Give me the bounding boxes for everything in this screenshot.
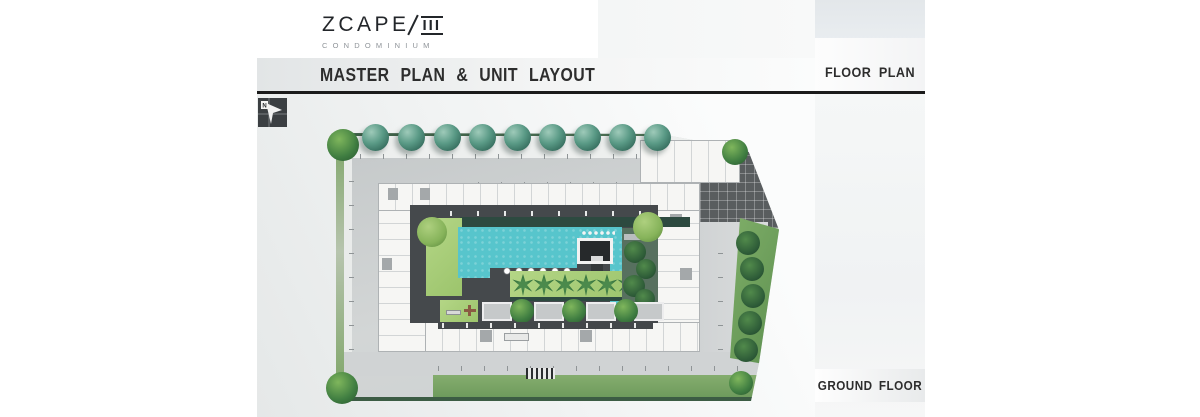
pavilion-seat — [591, 256, 603, 261]
master-plan-header-bar: MASTER PLAN & UNIT LAYOUT — [257, 58, 815, 91]
street-tree-icon — [434, 124, 461, 151]
spa-bench — [446, 310, 461, 315]
brand-subtitle: CONDOMINIUM — [322, 41, 502, 50]
compass-letter: N — [262, 104, 266, 110]
parking-ticks-right — [718, 230, 723, 350]
stair-core — [420, 188, 430, 200]
tree-icon — [417, 217, 447, 247]
tree-icon — [633, 212, 663, 242]
street-tree-icon — [398, 124, 425, 151]
top-middle-panel — [598, 0, 815, 58]
pool-pavilion — [577, 238, 613, 264]
spa-cross-icon — [468, 305, 471, 316]
street-tree-icon — [574, 124, 601, 151]
rear-lawn-strip — [433, 375, 765, 398]
page-title: MASTER PLAN & UNIT LAYOUT — [320, 65, 595, 86]
stair-core — [680, 268, 692, 280]
stair-core — [388, 188, 398, 200]
parking-ticks-top — [360, 154, 642, 159]
floor-plan-tab[interactable]: FLOOR PLAN — [815, 38, 925, 91]
tree-icon — [326, 372, 358, 404]
floor-plan-page: ZCAPE III CONDOMINIUM MASTER PLAN & UNIT… — [0, 0, 1200, 417]
amenity-courtyard — [410, 205, 658, 323]
ground-floor-label: GROUND FLOOR — [818, 378, 922, 393]
street-tree-icon — [644, 124, 671, 151]
tree-icon — [614, 299, 638, 323]
stair-core — [580, 330, 592, 342]
garden-bench — [504, 333, 529, 341]
stair-core — [382, 258, 392, 270]
pool-lap-lane — [458, 267, 490, 278]
palm-lawn — [510, 271, 640, 299]
terrace-patio — [482, 302, 512, 321]
street-tree-icon — [469, 124, 496, 151]
street-tree-icon — [362, 124, 389, 151]
street-tree-icon — [504, 124, 531, 151]
tree-icon — [736, 231, 760, 255]
tree-icon — [562, 299, 586, 323]
tree-icon — [740, 257, 764, 281]
tree-icon — [741, 284, 765, 308]
stepping-deck — [526, 368, 555, 379]
tree-icon — [734, 338, 758, 362]
floor-plan-label: FLOOR PLAN — [825, 64, 915, 80]
site-plan — [330, 118, 782, 410]
street-tree-icon — [609, 124, 636, 151]
brand-wordmark: ZCAPE III — [322, 13, 502, 37]
terrace-patio — [634, 302, 664, 321]
swimming-pool — [458, 239, 577, 268]
tree-icon — [729, 371, 753, 395]
ground-floor-tab[interactable]: GROUND FLOOR — [815, 369, 925, 402]
tree-icon — [738, 311, 762, 335]
stair-core — [480, 330, 492, 342]
left-boundary-green — [332, 132, 344, 398]
pool-jets — [581, 230, 615, 236]
tree-icon — [510, 299, 534, 323]
deck-edge-ticks — [450, 211, 650, 216]
street-tree-icon — [539, 124, 566, 151]
parking-ticks-bottom — [438, 366, 750, 371]
north-arrow-icon: N — [258, 98, 287, 127]
brand-logo: ZCAPE III CONDOMINIUM — [322, 13, 502, 50]
rear-boundary-hedge — [336, 397, 776, 401]
tree-icon — [722, 139, 748, 165]
brand-name: ZCAPE — [322, 13, 410, 37]
south-deck-ticks — [442, 323, 650, 328]
top-right-panel — [815, 0, 925, 40]
tree-icon — [327, 129, 359, 161]
parking-ticks-left — [349, 170, 354, 350]
terrace-patio — [586, 302, 616, 321]
brand-numeral: III — [421, 16, 444, 35]
private-terrace-row — [438, 300, 650, 322]
terrace-patio — [534, 302, 564, 321]
